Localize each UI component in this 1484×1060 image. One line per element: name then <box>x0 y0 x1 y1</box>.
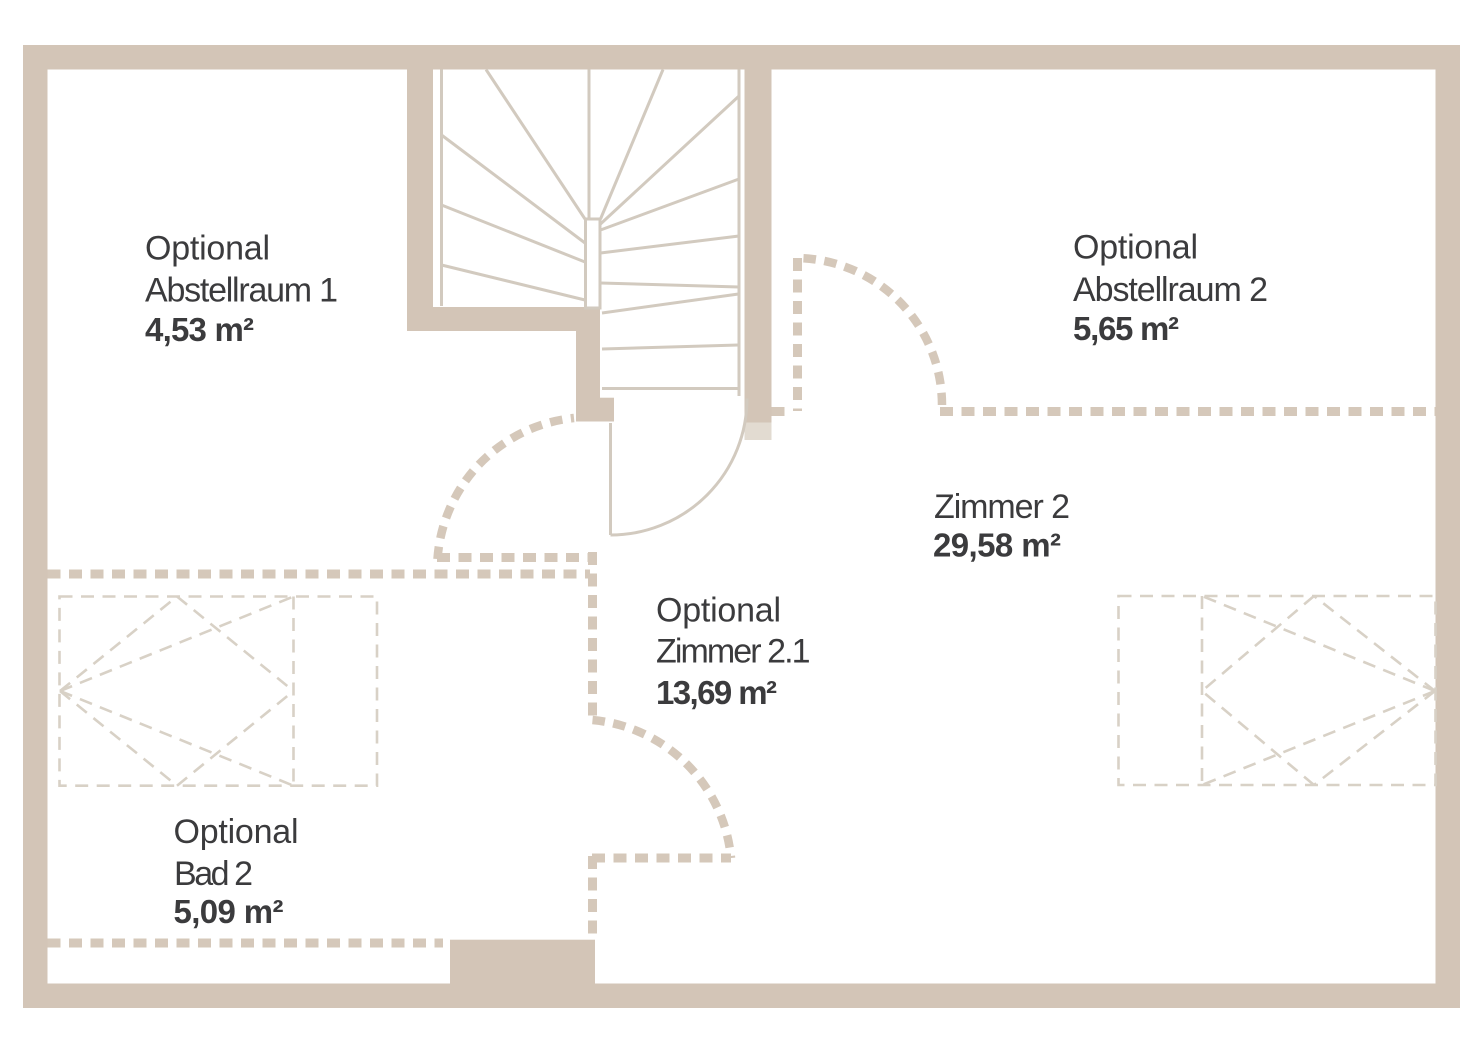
svg-text:Abstellraum 1: Abstellraum 1 <box>145 272 338 310</box>
svg-text:Optional: Optional <box>656 592 781 630</box>
svg-text:4,53 m²: 4,53 m² <box>145 311 254 348</box>
svg-text:5,65 m²: 5,65 m² <box>1073 310 1179 347</box>
svg-text:13,69 m²: 13,69 m² <box>656 674 777 711</box>
svg-text:Abstellraum 2: Abstellraum 2 <box>1073 271 1268 309</box>
svg-text:Optional: Optional <box>174 813 299 851</box>
svg-text:Zimmer 2.1: Zimmer 2.1 <box>656 633 810 671</box>
svg-text:5,09 m²: 5,09 m² <box>174 893 284 930</box>
svg-text:Bad 2: Bad 2 <box>174 855 253 893</box>
svg-text:Optional: Optional <box>145 230 270 268</box>
svg-text:29,58 m²: 29,58 m² <box>933 527 1061 564</box>
svg-text:Zimmer 2: Zimmer 2 <box>934 488 1070 526</box>
svg-text:Optional: Optional <box>1073 229 1198 267</box>
